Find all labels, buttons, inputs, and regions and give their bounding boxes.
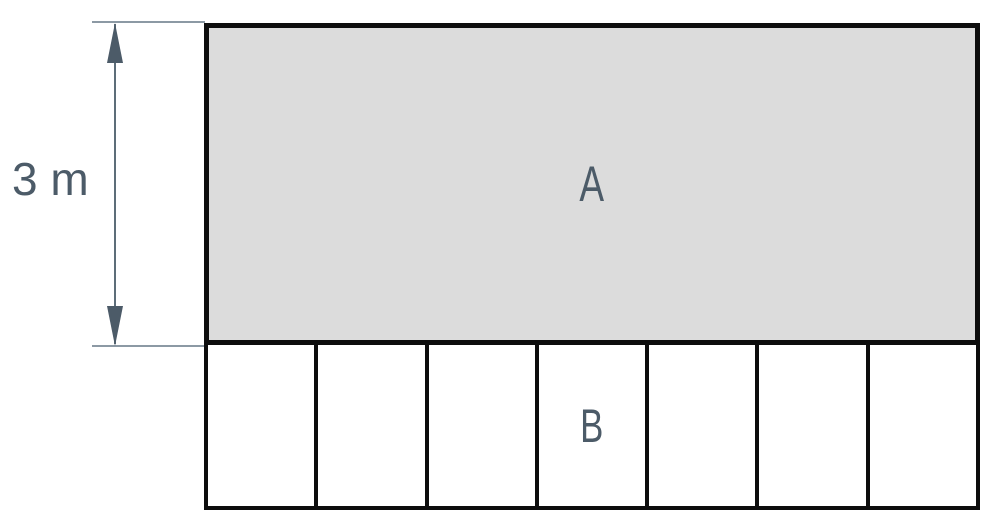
dimension-label: 3 m bbox=[12, 156, 100, 202]
geometry-diagram: 3 m A B bbox=[0, 0, 992, 524]
region-b-row: B bbox=[204, 345, 980, 510]
cell-3 bbox=[429, 345, 539, 506]
cell-2 bbox=[318, 345, 428, 506]
region-a-label: A bbox=[580, 159, 605, 209]
arrowhead-up-icon bbox=[107, 23, 123, 63]
cell-6 bbox=[759, 345, 869, 506]
cell-7 bbox=[870, 345, 976, 506]
arrowhead-down-icon bbox=[107, 306, 123, 346]
region-a: A bbox=[204, 23, 980, 345]
dimension-line bbox=[114, 24, 116, 344]
cell-1 bbox=[208, 345, 318, 506]
region-b-label: B bbox=[580, 402, 603, 449]
cell-4: B bbox=[539, 345, 649, 506]
cell-5 bbox=[649, 345, 759, 506]
